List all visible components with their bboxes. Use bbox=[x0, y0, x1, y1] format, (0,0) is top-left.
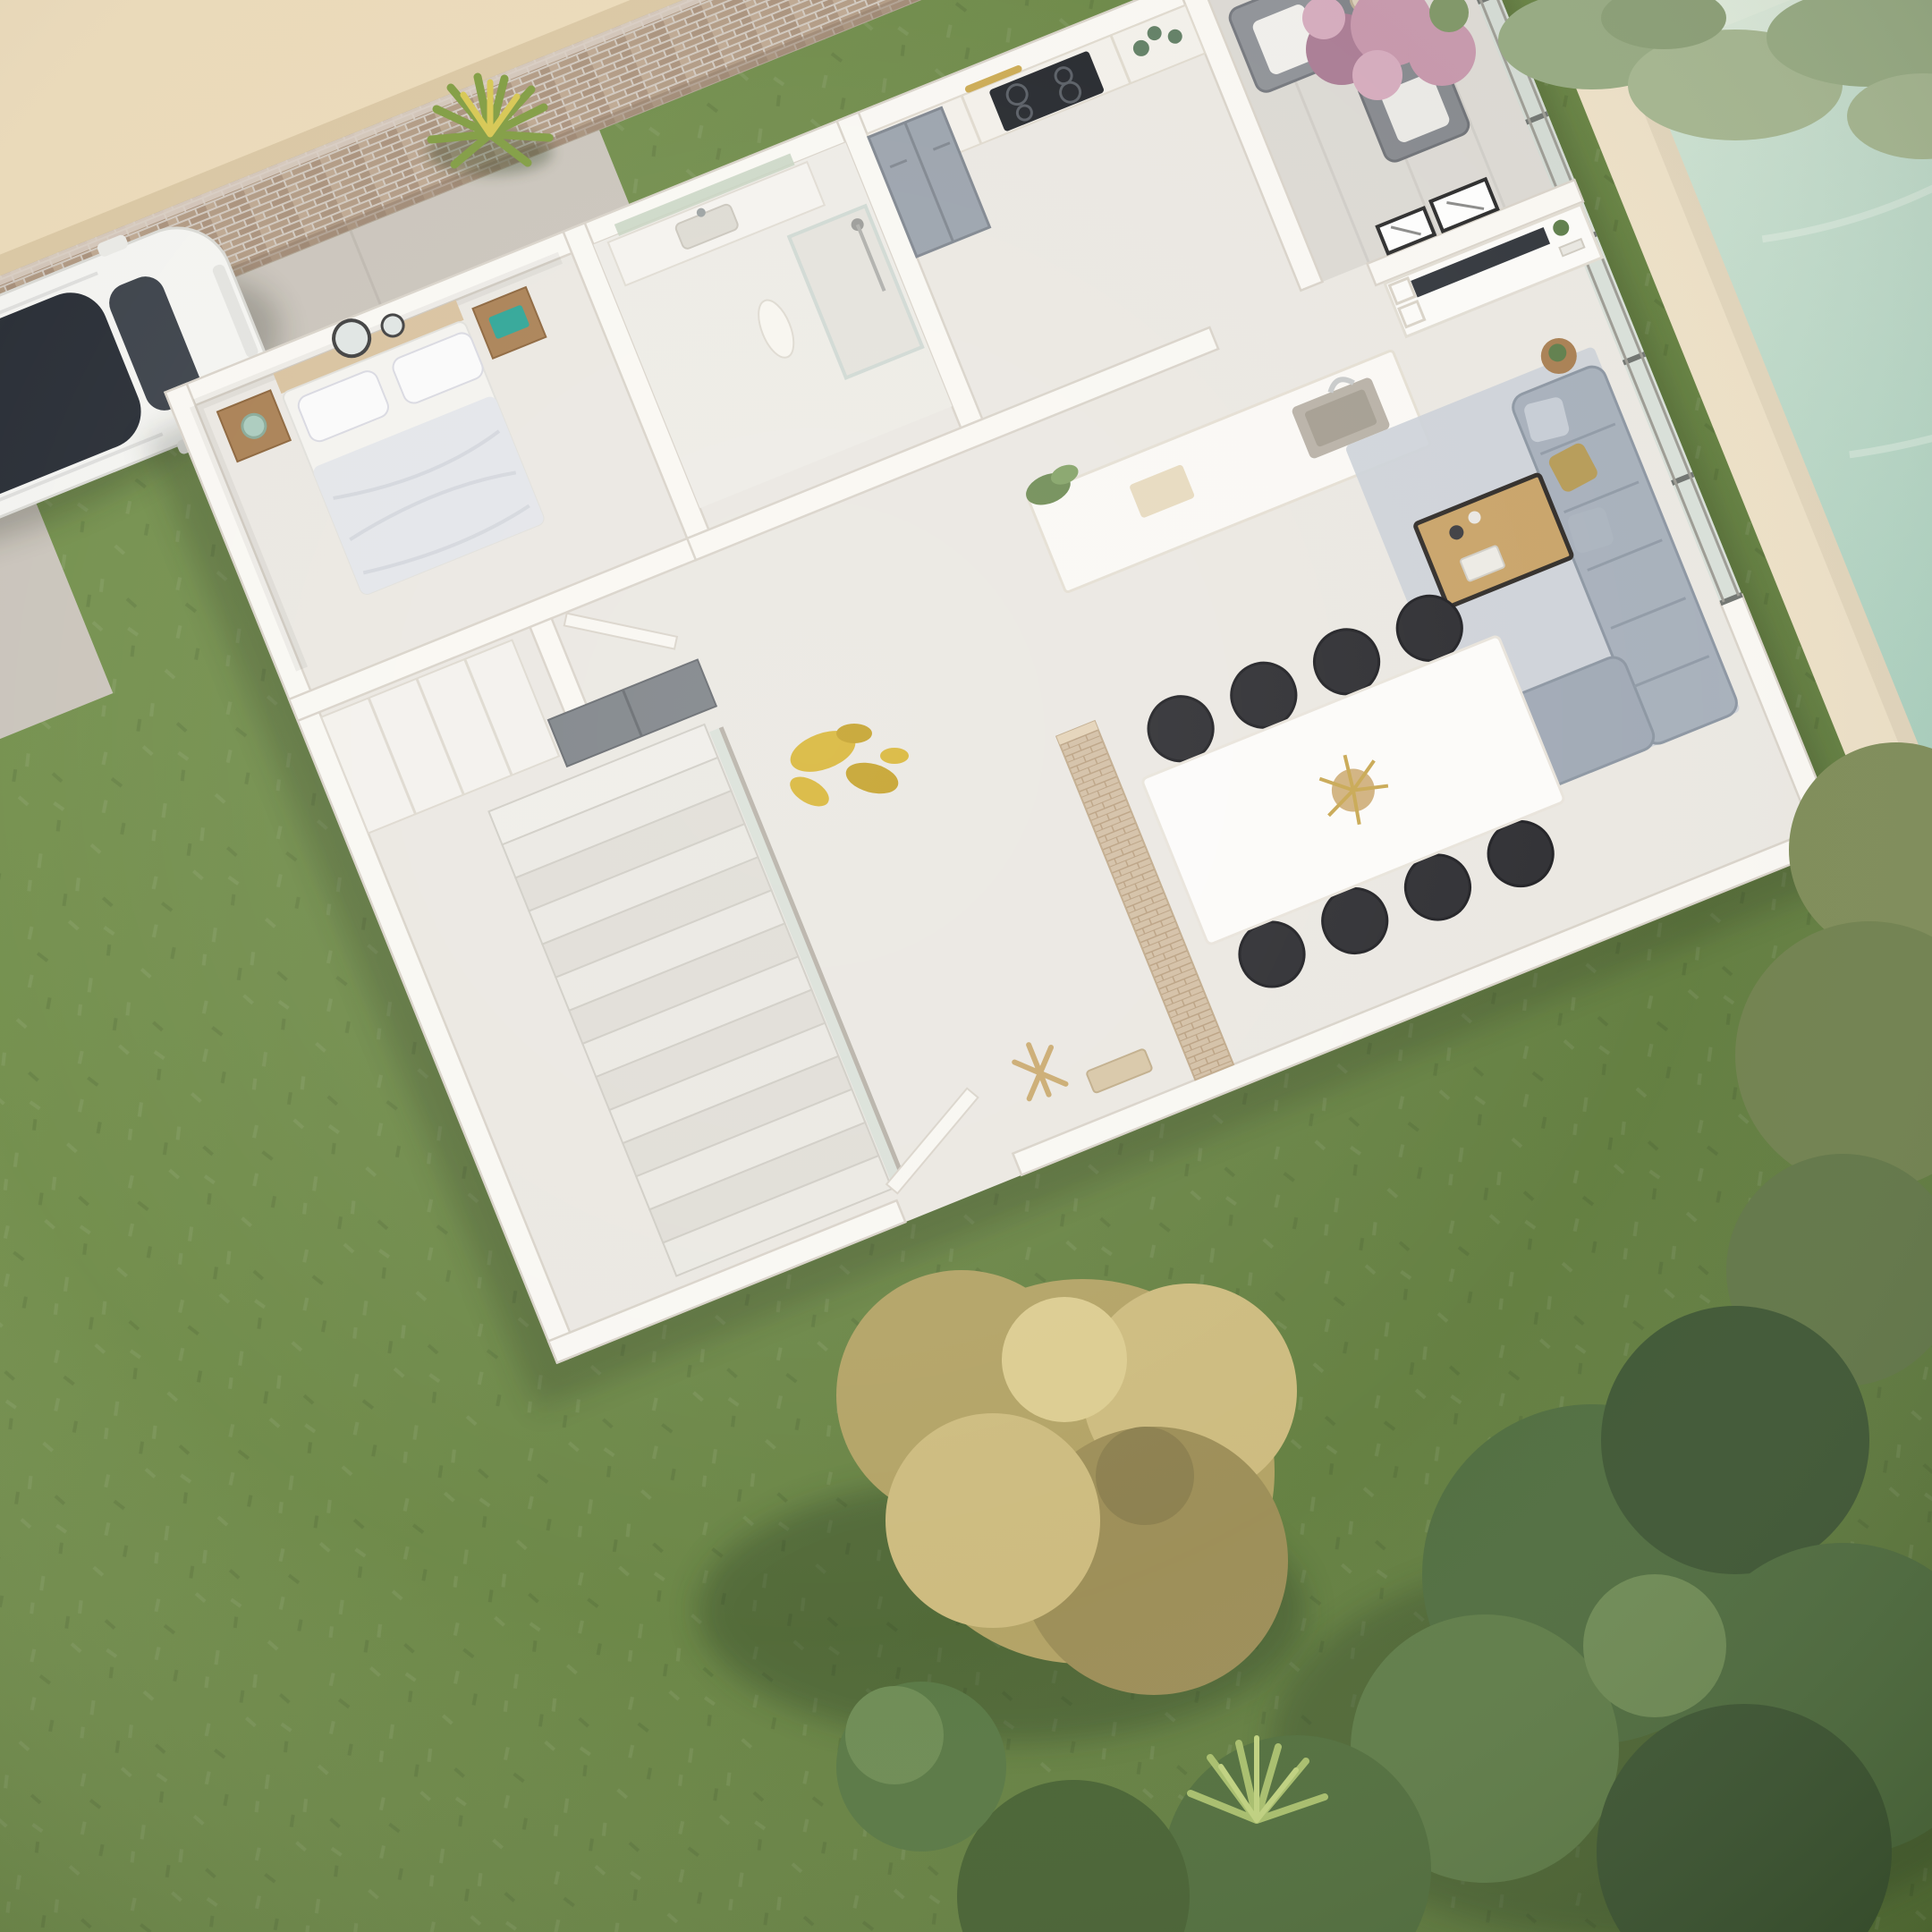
render-stage bbox=[0, 0, 1932, 1932]
scene-canvas bbox=[0, 0, 1932, 1932]
sunlight-vignette bbox=[0, 0, 1932, 1932]
